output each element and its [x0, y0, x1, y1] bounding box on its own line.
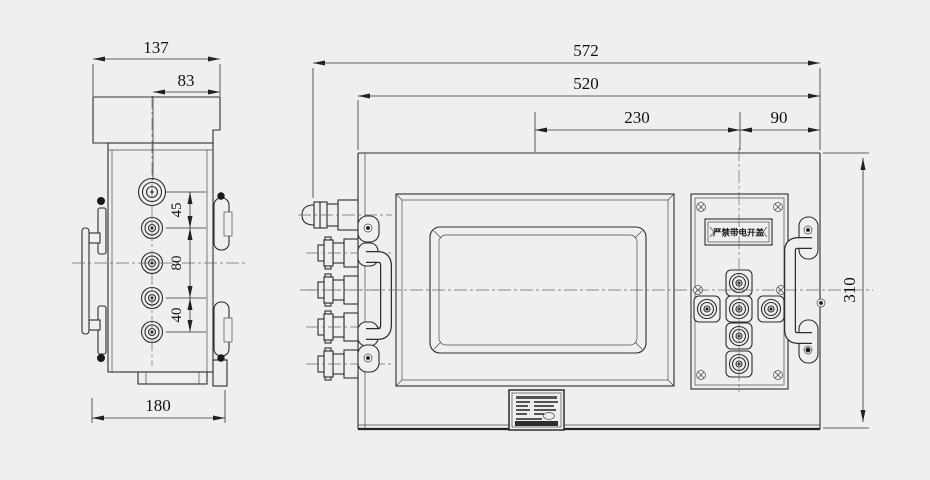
side-rear-brackets — [213, 193, 232, 386]
panel-screw-br — [774, 371, 783, 380]
right-handle-screw-top — [804, 226, 812, 234]
side-cover-profile — [93, 97, 220, 143]
control-panel: 严禁带电开盖 — [691, 194, 788, 389]
dim-310-label: 310 — [840, 277, 859, 303]
dim-40-label: 40 — [169, 308, 185, 323]
dim-90-label: 90 — [771, 108, 788, 127]
side-foot — [138, 372, 207, 384]
dim-83-label: 83 — [178, 71, 195, 90]
dim-137-label: 137 — [143, 38, 169, 57]
panel-screw-bl — [697, 371, 706, 380]
front-view: 严禁带电开盖 — [298, 148, 873, 430]
dim-45-label: 45 — [169, 203, 185, 218]
dim-180-label: 180 — [145, 396, 171, 415]
warning-plate: 严禁带电开盖 — [705, 219, 772, 245]
side-handle-screw-bottom — [98, 355, 105, 362]
left-handle-screw-bottom — [364, 354, 372, 362]
side-view — [72, 96, 246, 386]
dim-572-label: 572 — [573, 41, 599, 60]
side-handle — [82, 198, 106, 362]
left-handle-screw-top — [364, 224, 372, 232]
technical-drawing: 137 83 45 80 40 180 — [0, 0, 930, 480]
front-left-handle[interactable] — [358, 216, 386, 372]
dim-80-label: 80 — [169, 256, 185, 271]
dim-230-label: 230 — [624, 108, 650, 127]
edge-pin — [817, 299, 825, 307]
button-left[interactable] — [694, 296, 720, 322]
panel-screw-tl — [697, 203, 706, 212]
warning-text: 严禁带电开盖 — [712, 228, 765, 239]
dim-520-label: 520 — [573, 74, 599, 93]
button-right[interactable] — [758, 296, 784, 322]
side-handle-screw-top — [98, 198, 105, 205]
nameplate — [509, 390, 564, 430]
panel-screw-tr — [774, 203, 783, 212]
drawing-sheet: 137 83 45 80 40 180 — [0, 0, 930, 480]
